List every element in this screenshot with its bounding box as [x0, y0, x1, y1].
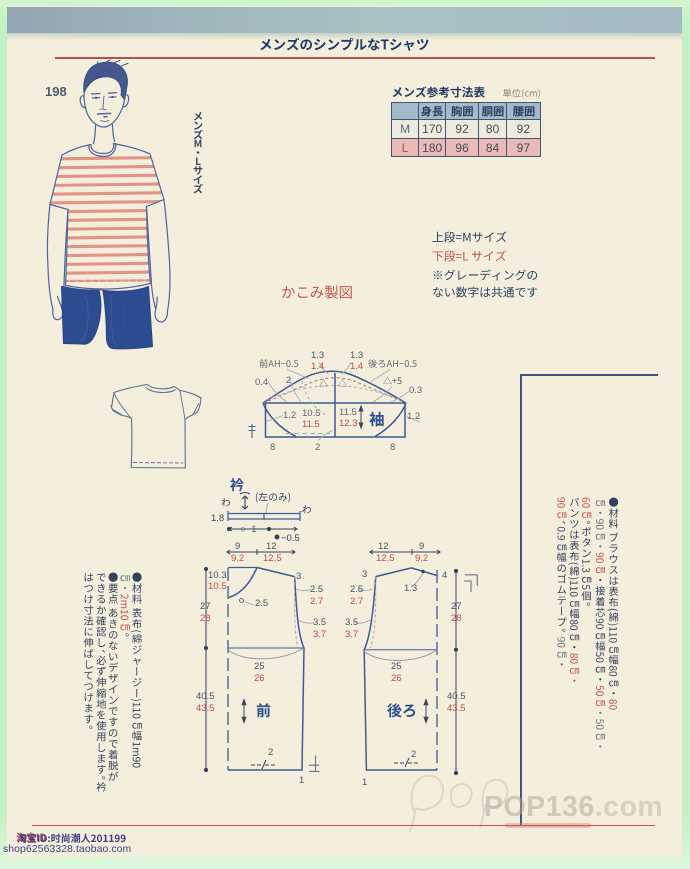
svg-text:40.5: 40.5: [447, 691, 466, 702]
svg-text:3.5: 3.5: [313, 617, 326, 628]
svg-text:12.5: 12.5: [376, 553, 395, 564]
svg-text:3.5: 3.5: [345, 617, 358, 628]
svg-text:−0.5: −0.5: [281, 533, 300, 544]
svg-text:43.5: 43.5: [196, 703, 215, 714]
svg-text:1.4: 1.4: [311, 361, 324, 372]
svg-text:3: 3: [362, 569, 367, 580]
svg-text:9: 9: [235, 541, 240, 552]
svg-text:2.5: 2.5: [310, 584, 323, 595]
svg-text:10.5: 10.5: [208, 581, 227, 592]
svg-text:12.5: 12.5: [263, 553, 282, 564]
svg-text:28: 28: [200, 613, 211, 624]
svg-text:25: 25: [391, 661, 402, 672]
svg-text:2.5: 2.5: [255, 598, 268, 609]
svg-text:0.4: 0.4: [255, 377, 268, 388]
svg-text:10.3: 10.3: [208, 570, 227, 581]
svg-text:2: 2: [315, 442, 320, 453]
svg-text:1.3: 1.3: [350, 350, 363, 361]
svg-text:10.5: 10.5: [302, 408, 321, 419]
svg-text:8: 8: [270, 442, 275, 453]
svg-text:2: 2: [286, 375, 291, 386]
svg-text:1.2: 1.2: [407, 411, 420, 422]
svg-text:9.2: 9.2: [231, 553, 244, 564]
svg-text:26: 26: [254, 673, 265, 684]
svg-text:11.5: 11.5: [339, 407, 357, 418]
svg-text:2.7: 2.7: [350, 596, 363, 607]
svg-text:25: 25: [254, 661, 265, 672]
svg-text:○−1: ○−1: [240, 524, 257, 535]
svg-text:0.3: 0.3: [409, 385, 422, 396]
svg-text:1.3: 1.3: [311, 350, 324, 361]
svg-text:9: 9: [419, 541, 424, 552]
svg-text:12.3: 12.3: [339, 418, 358, 429]
svg-text:26: 26: [391, 673, 402, 684]
svg-text:2.5: 2.5: [350, 584, 363, 595]
svg-text:27: 27: [451, 601, 462, 612]
svg-text:2: 2: [268, 747, 273, 758]
svg-text:POP136.com: POP136.com: [484, 791, 663, 823]
svg-text:40.5: 40.5: [196, 691, 215, 702]
svg-text:3.7: 3.7: [313, 629, 326, 640]
svg-text:9.2: 9.2: [415, 553, 428, 564]
svg-text:1.8: 1.8: [211, 513, 224, 524]
svg-text:2.7: 2.7: [310, 596, 323, 607]
svg-text:3: 3: [296, 571, 301, 582]
svg-text:12: 12: [378, 541, 389, 552]
svg-text:1.4: 1.4: [350, 361, 363, 372]
svg-text:3.7: 3.7: [345, 629, 358, 640]
svg-text:1.2: 1.2: [283, 410, 296, 421]
svg-text:27: 27: [200, 601, 211, 612]
svg-text:28: 28: [451, 613, 462, 624]
svg-text:12: 12: [266, 541, 277, 552]
svg-text:8: 8: [390, 442, 395, 453]
svg-text:4: 4: [442, 570, 447, 581]
svg-text:1.3: 1.3: [404, 583, 417, 594]
svg-text:1: 1: [362, 777, 367, 788]
svg-text:43.5: 43.5: [447, 703, 466, 714]
svg-text:1: 1: [299, 775, 304, 786]
svg-text:11.5: 11.5: [302, 419, 320, 430]
